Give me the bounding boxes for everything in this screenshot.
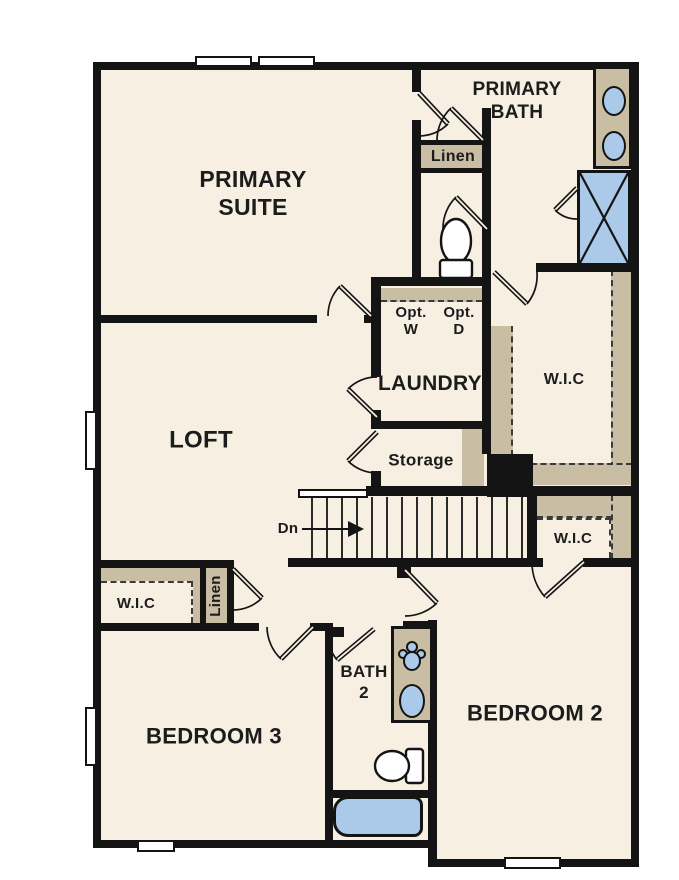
room-label-primary-bath: PRIMARY BATH bbox=[472, 78, 561, 124]
closet-label-linen-hall: Linen bbox=[207, 575, 225, 617]
room-label-laundry: LAUNDRY bbox=[378, 371, 482, 397]
appliance-label-dryer: Opt. D bbox=[443, 304, 474, 339]
toilet-icon bbox=[375, 749, 423, 783]
shower-x-icon bbox=[580, 173, 628, 263]
room-label-wic-bedroom3: W.I.C bbox=[117, 595, 155, 613]
room-label-bath2: BATH 2 bbox=[340, 661, 387, 704]
room-label-wic-primary: W.I.C bbox=[544, 370, 585, 390]
stair-treads bbox=[312, 497, 522, 558]
room-label-wic-bedroom2: W.I.C bbox=[554, 530, 592, 548]
toilet-icon bbox=[440, 219, 472, 278]
room-label-storage: Storage bbox=[388, 451, 453, 472]
room-label-bedroom3: BEDROOM 3 bbox=[146, 724, 282, 751]
plan-linework bbox=[0, 0, 679, 880]
stairs-label-dn: Dn bbox=[278, 520, 299, 538]
floor-plan: PRIMARY SUITE PRIMARY BATH Linen LAUNDRY… bbox=[0, 0, 679, 880]
room-label-primary-suite: PRIMARY SUITE bbox=[199, 165, 306, 221]
appliance-label-washer: Opt. W bbox=[395, 304, 426, 339]
room-label-loft: LOFT bbox=[169, 425, 233, 454]
faucet-icon bbox=[399, 642, 425, 670]
closet-label-linen-bath: Linen bbox=[431, 147, 475, 167]
room-label-bedroom2: BEDROOM 2 bbox=[467, 701, 603, 728]
